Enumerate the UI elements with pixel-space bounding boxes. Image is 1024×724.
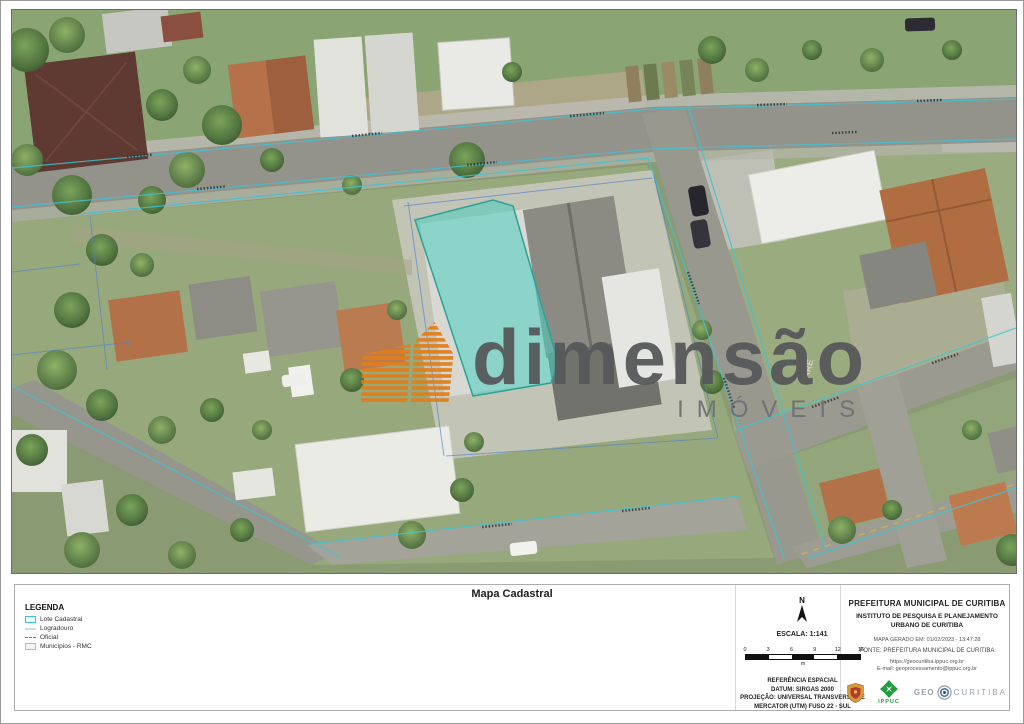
map-footer-panel: Mapa Cadastral LEGENDA Lote Cadastral Lo… xyxy=(14,584,1010,711)
ippuc-icon xyxy=(880,680,898,698)
logradouro-swatch xyxy=(25,628,36,630)
scale-label: ESCALA: 1:141 xyxy=(742,631,862,638)
scale-tick: 9 xyxy=(813,647,816,653)
aerial-map: PARE dimensão IMÓVEIS xyxy=(11,9,1017,574)
curitiba-coat-of-arms-icon xyxy=(847,679,864,707)
aerial-map-canvas: PARE xyxy=(12,10,1016,573)
ippuc-label: IPPUC xyxy=(878,699,900,705)
scale-tick: 0 xyxy=(743,647,746,653)
legend-item-lote-cadastral: Lote Cadastral xyxy=(25,615,92,624)
map-generated-timestamp: MAPA GERADO EM: 01/02/2023 - 13:47:28 xyxy=(847,637,1007,643)
scale-tick: 12 xyxy=(835,647,841,653)
geo-label: GEO xyxy=(914,688,935,697)
geocuritiba-eye-icon xyxy=(937,685,952,700)
agency-institute: INSTITUTO DE PESQUISA E PLANEJAMENTO URB… xyxy=(852,613,1002,631)
scale-tick: 3 xyxy=(767,647,770,653)
scale-bar: 0 3 6 9 12 15 m xyxy=(745,647,861,667)
logos-row: IPPUC GEO CURITIBA xyxy=(847,679,1007,707)
agency-email: E-mail: geoprocessamento@ippuc.org.br xyxy=(847,666,1007,672)
legend-item-label: Municípios - RMC xyxy=(40,643,92,650)
scale-bar-segments xyxy=(745,654,861,660)
scale-bar-ticks: 0 3 6 9 12 15 xyxy=(745,647,861,654)
agency-url: https://geocuritiba.ippuc.org.br xyxy=(847,659,1007,665)
map-sheet-page: PARE dimensão IMÓVEIS Mapa Cadastra xyxy=(0,0,1024,724)
legend-item-label: Oficial xyxy=(40,634,58,641)
legend-item-municipios-rmc: Municípios - RMC xyxy=(25,642,92,651)
agency-name: PREFEITURA MUNICIPAL DE CURITIBA xyxy=(847,599,1007,608)
north-arrow-icon xyxy=(796,605,808,623)
lote-cadastral-swatch xyxy=(25,616,36,623)
legend: LEGENDA Lote Cadastral Logradouro Oficia… xyxy=(25,603,92,651)
municipios-rmc-swatch xyxy=(25,643,36,650)
scale-unit: m xyxy=(745,661,861,667)
agency-block: PREFEITURA MUNICIPAL DE CURITIBA INSTITU… xyxy=(847,599,1007,707)
legend-title: LEGENDA xyxy=(25,603,92,612)
north-arrow: N xyxy=(762,597,842,628)
legend-item-oficial: Oficial xyxy=(25,633,92,642)
geocuritiba-logo: GEO CURITIBA xyxy=(914,685,1007,700)
legend-item-label: Logradouro xyxy=(40,625,73,632)
oficial-swatch xyxy=(25,637,36,638)
ippuc-logo: IPPUC xyxy=(878,680,900,705)
north-label: N xyxy=(762,597,842,605)
legend-item-logradouro: Logradouro xyxy=(25,624,92,633)
map-source: FONTE: PREFEITURA MUNICIPAL DE CURITIBA xyxy=(847,648,1007,654)
scale-tick: 6 xyxy=(790,647,793,653)
curitiba-label: CURITIBA xyxy=(954,688,1007,697)
legend-item-label: Lote Cadastral xyxy=(40,616,82,623)
